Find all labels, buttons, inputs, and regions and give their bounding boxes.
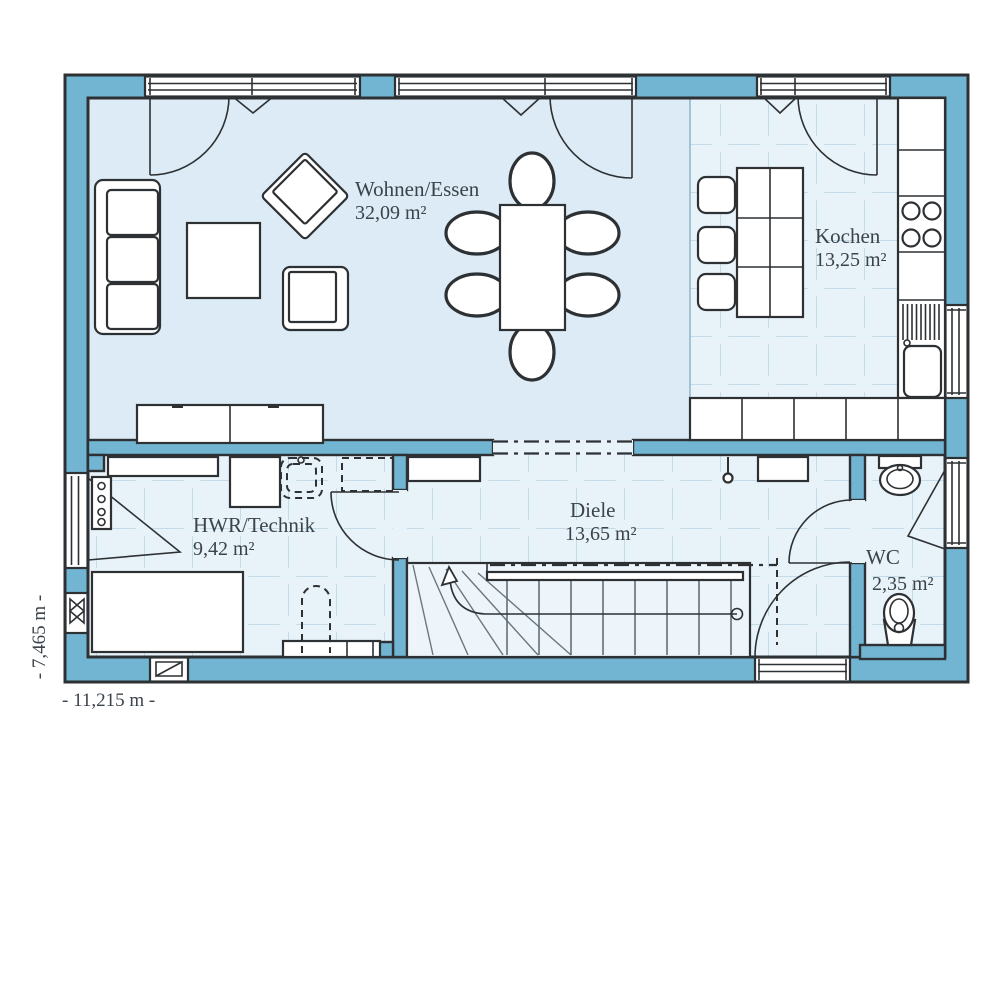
room-area-diele: 13,65 m² — [565, 523, 637, 545]
dining-chair — [557, 212, 619, 254]
hall-wardrobe — [758, 457, 808, 481]
wall-below-wc — [860, 645, 945, 659]
room-area-hwr: 9,42 m² — [193, 538, 255, 560]
bar-stools — [698, 177, 735, 310]
room-label-wohnen-essen: Wohnen/Essen — [355, 177, 480, 201]
room-label-wc: WC — [866, 545, 900, 569]
wall-hwr-diele-lower — [393, 558, 407, 657]
coffee-table — [187, 223, 260, 298]
kitchen-island — [737, 168, 803, 317]
armchair — [283, 267, 348, 330]
room-label-kochen: Kochen — [815, 224, 881, 248]
bar-stool — [698, 177, 735, 213]
vent-icon-bottom-wall — [150, 658, 188, 682]
room-label-diele: Diele — [570, 498, 615, 522]
wall-kitchen-diele — [633, 440, 945, 455]
wc-sink — [879, 456, 921, 495]
sofa — [95, 180, 160, 334]
tv-sideboard — [137, 404, 323, 443]
dimension-height: - 7,465 m - — [29, 595, 50, 679]
toilet — [884, 594, 915, 645]
stairs — [407, 563, 777, 657]
dimension-width: - 11,215 m - — [62, 690, 155, 711]
dining-table — [500, 205, 565, 330]
kitchen-counter-right — [898, 98, 945, 398]
bar-stool — [698, 227, 735, 263]
wall-hwr-diele-upper — [393, 455, 407, 490]
dining-chair — [446, 274, 508, 316]
wc-door-opening — [850, 500, 865, 563]
dining-chair — [446, 212, 508, 254]
dining-chair — [510, 153, 554, 209]
wall-diele-wc-upper — [850, 455, 865, 500]
room-area-wc: 2,35 m² — [872, 573, 934, 595]
floor-plan-page: Wohnen/Essen 32,09 m² Kochen 13,25 m² HW… — [0, 0, 1000, 1000]
hwr-door-opening — [393, 490, 407, 558]
room-area-wohnen-essen: 32,09 m² — [355, 202, 427, 224]
vent-icon-left-wall — [66, 593, 88, 633]
washing-machine — [230, 457, 280, 507]
utility-plinth — [283, 641, 380, 657]
duct-hwr-corner — [88, 455, 104, 471]
dining-chair — [557, 274, 619, 316]
bar-stool — [698, 274, 735, 310]
kitchen-counter-bottom — [690, 398, 945, 440]
room-area-kochen: 13,25 m² — [815, 249, 887, 271]
heat-pump — [92, 572, 243, 652]
dining-chair — [510, 324, 554, 380]
wall-diele-wc-lower — [850, 563, 865, 657]
room-label-hwr: HWR/Technik — [193, 513, 316, 537]
hall-sideboard — [408, 457, 480, 481]
floor-plan: Wohnen/Essen 32,09 m² Kochen 13,25 m² HW… — [0, 0, 1000, 1000]
electrical-panel — [92, 477, 111, 529]
utility-counter — [108, 457, 218, 476]
